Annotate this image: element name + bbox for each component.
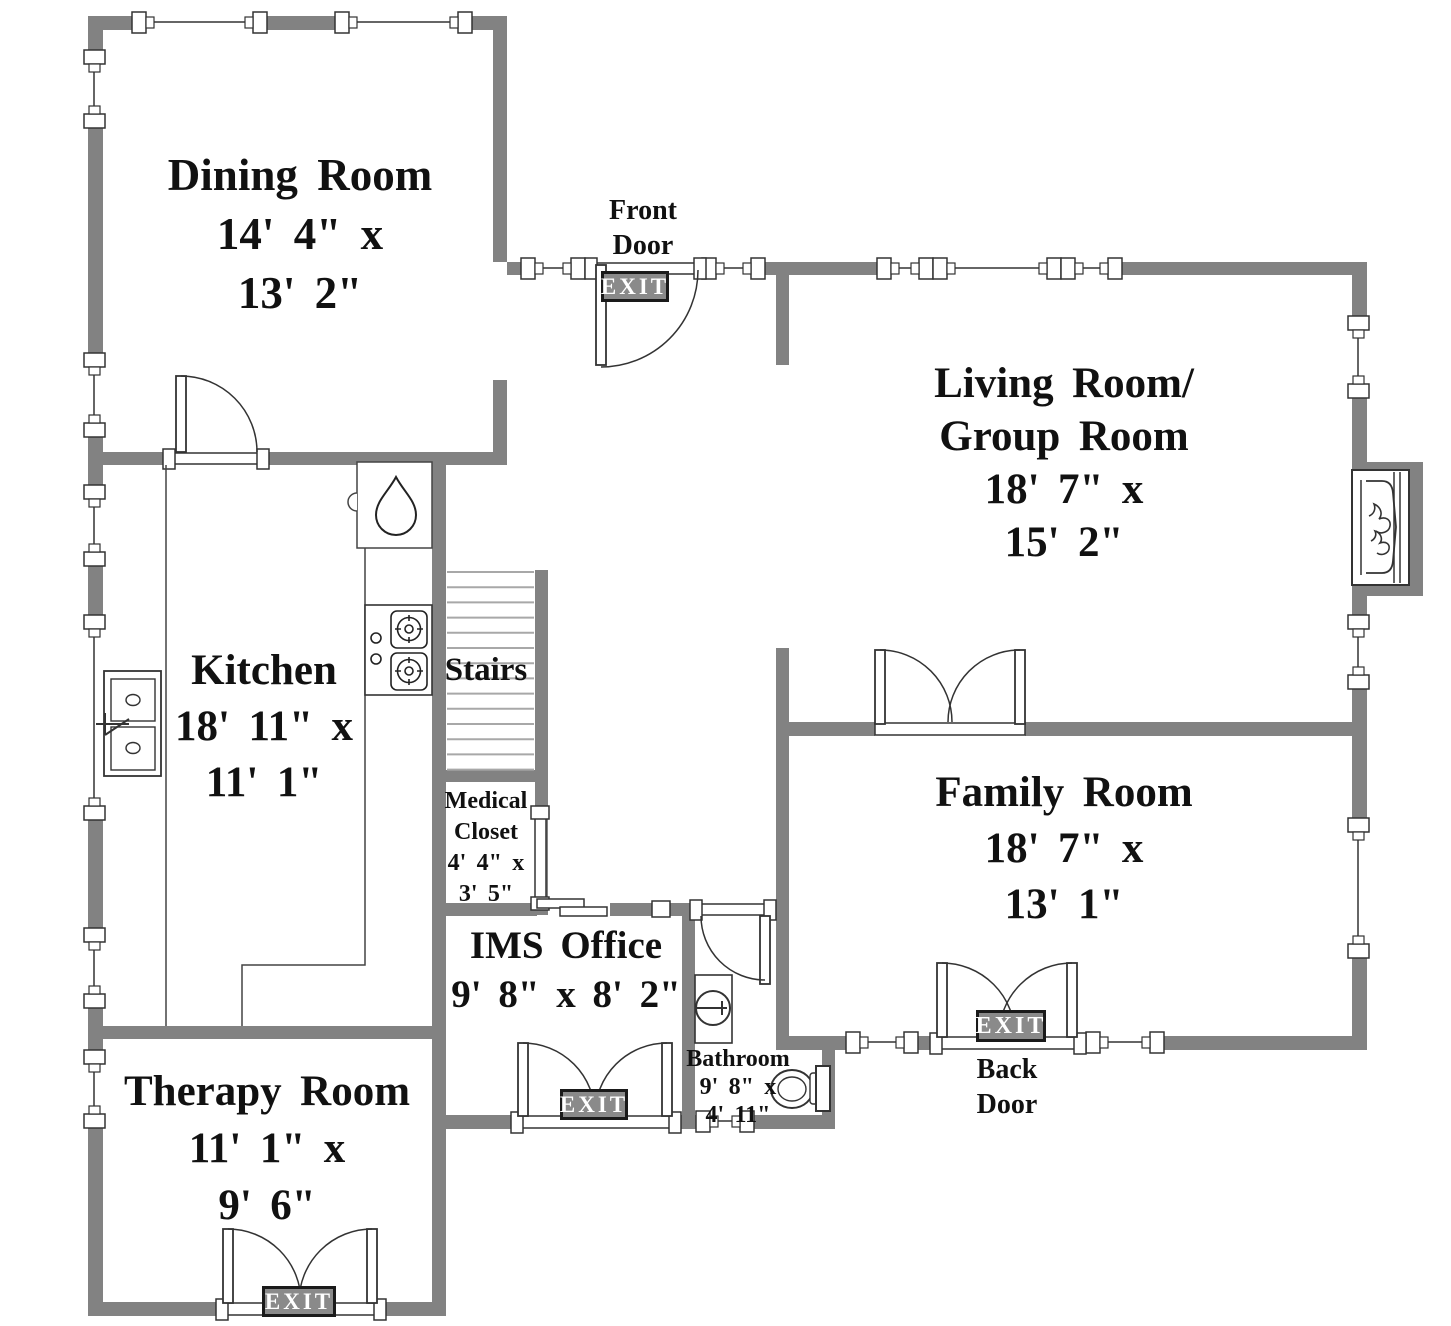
window [933,258,1061,279]
stairs-label: Stairs [445,652,528,689]
stove [365,605,432,695]
living-family-double-door [875,650,1025,724]
fireplace [1352,470,1409,585]
window [1348,316,1369,398]
medical-closet-label: MedicalCloset4' 4" x3' 5" [445,786,528,910]
window [1086,1032,1164,1053]
dining-room-label: Dining Room14' 4" x13' 2" [168,146,432,323]
family-room-label: Family Room18' 7" x13' 1" [935,765,1192,933]
window [84,928,105,1008]
back-door-label: BackDoor [977,1052,1038,1122]
window [877,258,933,279]
bathroom-sink [695,975,732,1043]
window [1348,615,1369,689]
window [84,50,105,128]
kitchen-label: Kitchen18' 11" x11' 1" [175,643,353,811]
window [846,1032,918,1053]
medical-closet-pocket-door [531,806,549,910]
bathroom-label: Bathroom9' 8" x4' 11" [686,1045,790,1129]
window [335,12,472,33]
window [702,258,765,279]
front-door-exit-sign: EXIT [601,271,669,302]
window [1348,818,1369,958]
window [84,1050,105,1128]
living-room-label: Living Room/Group Room18' 7" x15' 2" [934,357,1194,569]
window [521,258,585,279]
window [1061,258,1122,279]
front-door-label: FrontDoor [609,193,677,263]
kitchen-sink [96,671,161,776]
ims-office-label: IMS Office9' 8" x 8' 2" [451,921,681,1019]
dining-room-door [176,376,257,452]
window [84,615,105,820]
water-heater [348,462,432,548]
window [132,12,267,33]
back-door-exit-sign: EXIT [976,1010,1046,1042]
therapy-room-exit-sign: EXIT [262,1286,336,1317]
ims-office-exit-sign: EXIT [560,1089,628,1120]
window [84,485,105,566]
floor-plan: Dining Room14' 4" x13' 2" FrontDoor Livi… [0,0,1451,1326]
therapy-room-label: Therapy Room11' 1" x9' 6" [124,1063,410,1234]
bathroom-door [701,916,770,984]
window [84,353,105,437]
